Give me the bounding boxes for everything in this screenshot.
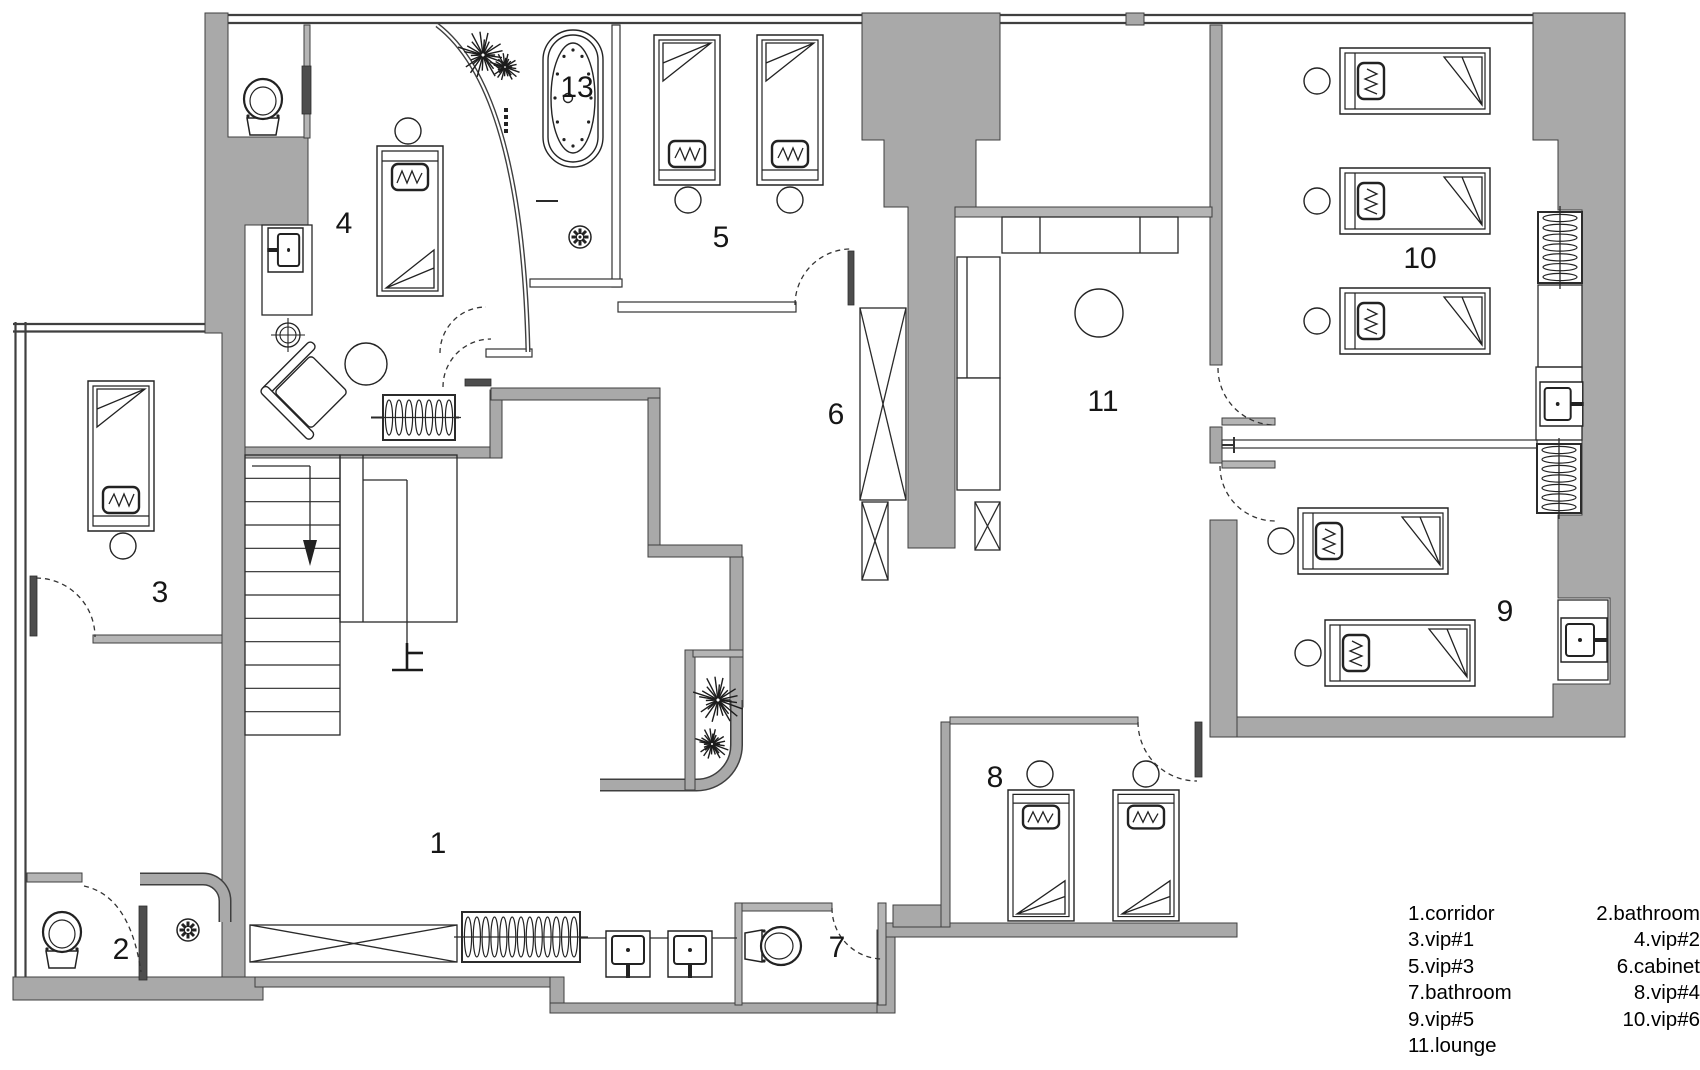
stair-direction-arrow [252, 466, 317, 566]
room-label-11: 11 [1087, 385, 1118, 418]
legend-item: 10.vip#6 [1550, 1007, 1700, 1033]
stair-up-annotation [392, 643, 423, 670]
massage-bed [1340, 168, 1490, 234]
stool [1133, 761, 1159, 787]
ceiling-light-icon [271, 318, 305, 352]
vestibule-wall-tee [1222, 437, 1234, 453]
room-label-5: 5 [713, 221, 730, 254]
legend-item: 4.vip#2 [1550, 927, 1700, 953]
exhaust-fan-icon [569, 226, 591, 248]
room-label-10: 10 [1403, 242, 1436, 275]
massage-bed [1113, 790, 1179, 921]
stool [1304, 308, 1330, 334]
stool [675, 187, 701, 213]
wall-radiator [1537, 438, 1581, 519]
door-leaf [848, 251, 854, 305]
legend-column-right: 2.bathroom 4.vip#2 6.cabinet 8.vip#4 10.… [1550, 901, 1700, 1059]
massage-bed [377, 146, 443, 296]
door-leaf [1195, 722, 1202, 777]
massage-bed [757, 35, 823, 185]
plant-icon [695, 728, 728, 758]
stool [395, 118, 421, 144]
round-table [1075, 289, 1123, 337]
massage-bed [1340, 288, 1490, 354]
legend-item: 3.vip#1 [1408, 927, 1540, 953]
bench-radiator [454, 912, 588, 962]
exhaust-fan-icon [177, 919, 199, 941]
toilet [43, 912, 81, 968]
stool [777, 187, 803, 213]
sink [606, 931, 650, 978]
room-label-2: 2 [113, 933, 130, 966]
legend-item: 6.cabinet [1550, 954, 1700, 980]
legend-item: 5.vip#3 [1408, 954, 1540, 980]
stool [1304, 68, 1330, 94]
legend-item: 2.bathroom [1550, 901, 1700, 927]
room-label-4: 4 [336, 207, 353, 240]
legend-item: 9.vip#5 [1408, 1007, 1540, 1033]
legend-column-left: 1.corridor 3.vip#1 5.vip#3 7.bathroom 9.… [1408, 901, 1540, 1059]
sink [668, 931, 712, 978]
room-label-1: 1 [430, 827, 447, 860]
massage-bed [1008, 790, 1074, 921]
room-label-7: 7 [829, 931, 846, 964]
massage-bed [654, 35, 720, 185]
stool [1304, 188, 1330, 214]
wall-radiator [1538, 206, 1582, 289]
sink [267, 228, 303, 272]
lounge-counter [1002, 217, 1178, 253]
side-table [345, 343, 387, 385]
stool [1295, 640, 1321, 666]
stool [1268, 528, 1294, 554]
toilet [244, 79, 282, 135]
room-label-6: 6 [828, 398, 845, 431]
shoe-cabinet [250, 925, 457, 962]
room-label-9: 9 [1497, 595, 1514, 628]
massage-bed [1298, 508, 1448, 574]
shower-door-panel [139, 906, 147, 980]
sink-vanity [1536, 367, 1584, 440]
tub-controls [504, 108, 508, 133]
legend-item: 1.corridor [1408, 901, 1540, 927]
staircase [245, 455, 457, 735]
legend-item: 11.lounge [1408, 1033, 1540, 1059]
massage-bed [1325, 620, 1475, 686]
stool [1027, 761, 1053, 787]
sink-vanity [1558, 600, 1608, 680]
massage-bed [1340, 48, 1490, 114]
legend: 1.corridor 3.vip#1 5.vip#3 7.bathroom 9.… [1408, 901, 1700, 1059]
room-label-8: 8 [987, 761, 1004, 794]
floor-plan: 1 2 3 4 5 6 7 8 9 10 11 13 1.corridor 3.… [0, 0, 1700, 1070]
stool [110, 533, 136, 559]
armchair [259, 340, 359, 440]
room-label-13: 13 [560, 71, 593, 104]
door-leaf [30, 576, 37, 636]
bench-radiator [371, 395, 461, 440]
cabinet [1538, 285, 1582, 367]
legend-item: 7.bathroom [1408, 980, 1540, 1006]
massage-bed [88, 381, 154, 531]
room-label-3: 3 [152, 576, 169, 609]
toilet [745, 927, 801, 965]
door-leaf [302, 66, 311, 114]
legend-item: 8.vip#4 [1550, 980, 1700, 1006]
